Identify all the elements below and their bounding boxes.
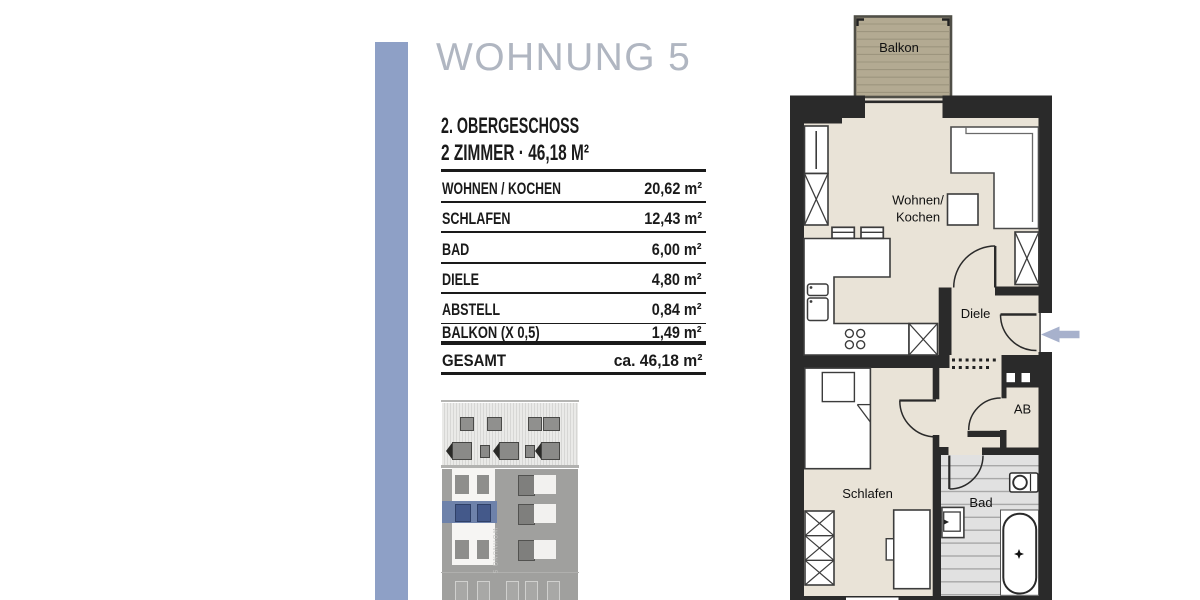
svg-text:Kochen: Kochen xyxy=(896,210,940,225)
svg-text:Balkon: Balkon xyxy=(879,40,919,55)
svg-text:Diele: Diele xyxy=(961,306,991,321)
svg-text:Bad: Bad xyxy=(969,495,992,510)
svg-text:AB: AB xyxy=(1014,402,1031,417)
svg-text:Schlafen: Schlafen xyxy=(842,486,893,501)
svg-text:Wohnen/: Wohnen/ xyxy=(892,193,944,208)
